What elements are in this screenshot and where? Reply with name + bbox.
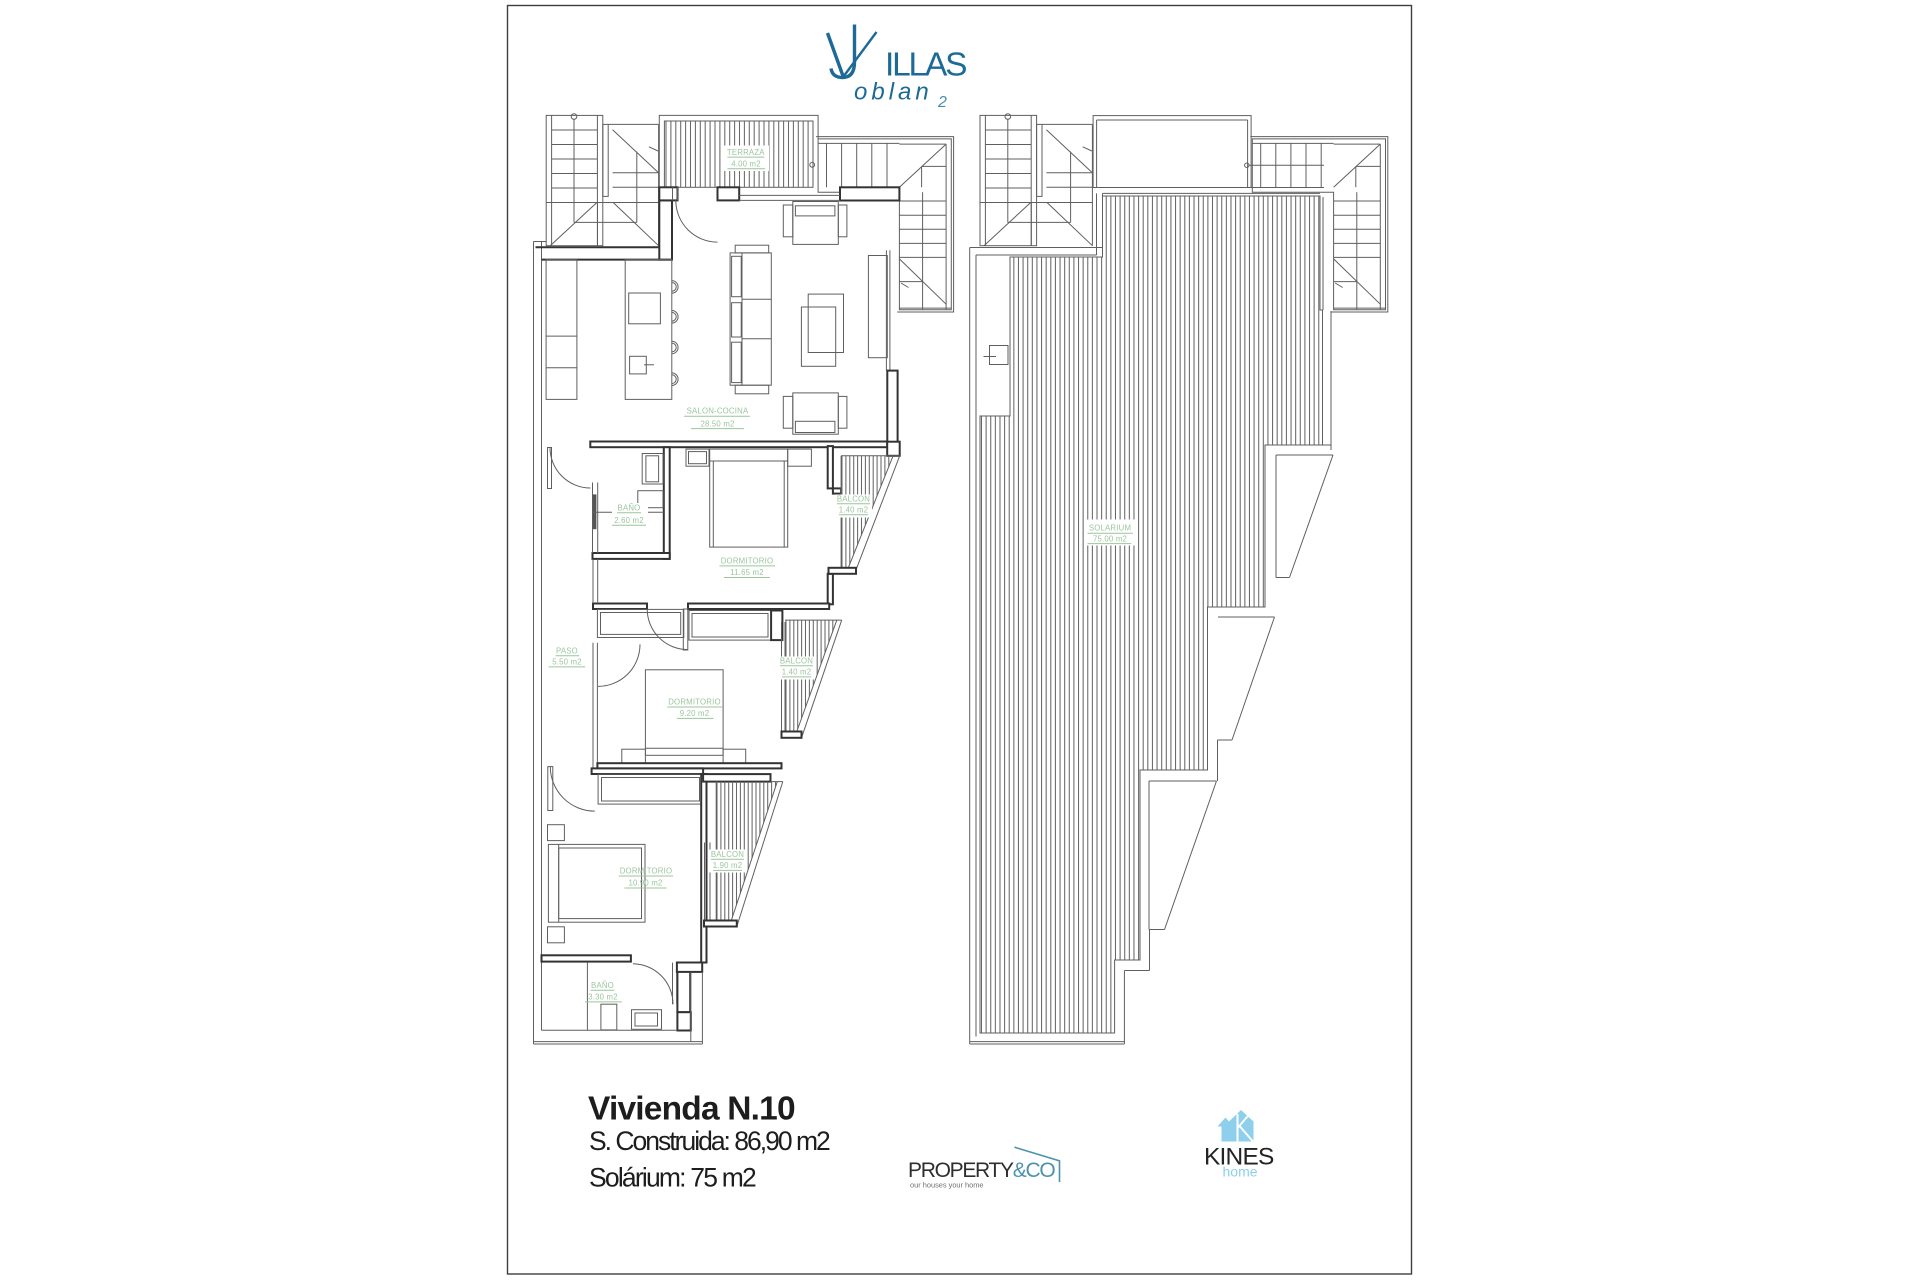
svg-text:PROPERTY&CO: PROPERTY&CO xyxy=(908,1159,1055,1182)
svg-text:DORMITORIO: DORMITORIO xyxy=(620,867,673,876)
svg-text:11.65 m2: 11.65 m2 xyxy=(730,568,764,577)
svg-text:DORMITORIO: DORMITORIO xyxy=(668,698,721,707)
svg-text:BAÑO: BAÑO xyxy=(591,981,614,990)
svg-text:1.40 m2: 1.40 m2 xyxy=(839,506,869,515)
svg-text:SOLARIUM: SOLARIUM xyxy=(1089,524,1131,533)
svg-text:our houses your home: our houses your home xyxy=(910,1181,984,1190)
svg-text:oblan: oblan xyxy=(854,79,933,106)
svg-text:BALCON: BALCON xyxy=(711,850,744,859)
svg-text:BALCON: BALCON xyxy=(780,657,813,666)
svg-text:1.90 m2: 1.90 m2 xyxy=(713,861,743,870)
svg-text:Vivienda N.10: Vivienda N.10 xyxy=(588,1091,795,1128)
svg-text:home: home xyxy=(1223,1164,1258,1180)
svg-text:Solárium: 75 m2: Solárium: 75 m2 xyxy=(589,1163,756,1193)
svg-text:5.50 m2: 5.50 m2 xyxy=(552,658,582,667)
svg-text:1.40 m2: 1.40 m2 xyxy=(782,668,812,677)
svg-text:SALON-COCINA: SALON-COCINA xyxy=(687,407,749,416)
svg-text:PASO: PASO xyxy=(556,647,578,656)
svg-text:75.00 m2: 75.00 m2 xyxy=(1093,535,1127,544)
svg-text:BAÑO: BAÑO xyxy=(618,504,641,513)
svg-text:S. Construida: 86,90 m2: S. Construida: 86,90 m2 xyxy=(589,1126,830,1156)
svg-text:28.50 m2: 28.50 m2 xyxy=(700,420,734,429)
svg-text:2.60 m2: 2.60 m2 xyxy=(614,516,644,525)
svg-text:10.90 m2: 10.90 m2 xyxy=(628,879,662,888)
svg-text:9.20 m2: 9.20 m2 xyxy=(680,709,710,718)
svg-text:3.30 m2: 3.30 m2 xyxy=(588,993,618,1002)
svg-text:TERRAZA: TERRAZA xyxy=(727,148,765,157)
svg-text:2: 2 xyxy=(937,94,947,111)
svg-text:4.00 m2: 4.00 m2 xyxy=(731,160,761,169)
svg-text:BALCON: BALCON xyxy=(837,495,870,504)
svg-text:DORMITORIO: DORMITORIO xyxy=(721,557,774,566)
